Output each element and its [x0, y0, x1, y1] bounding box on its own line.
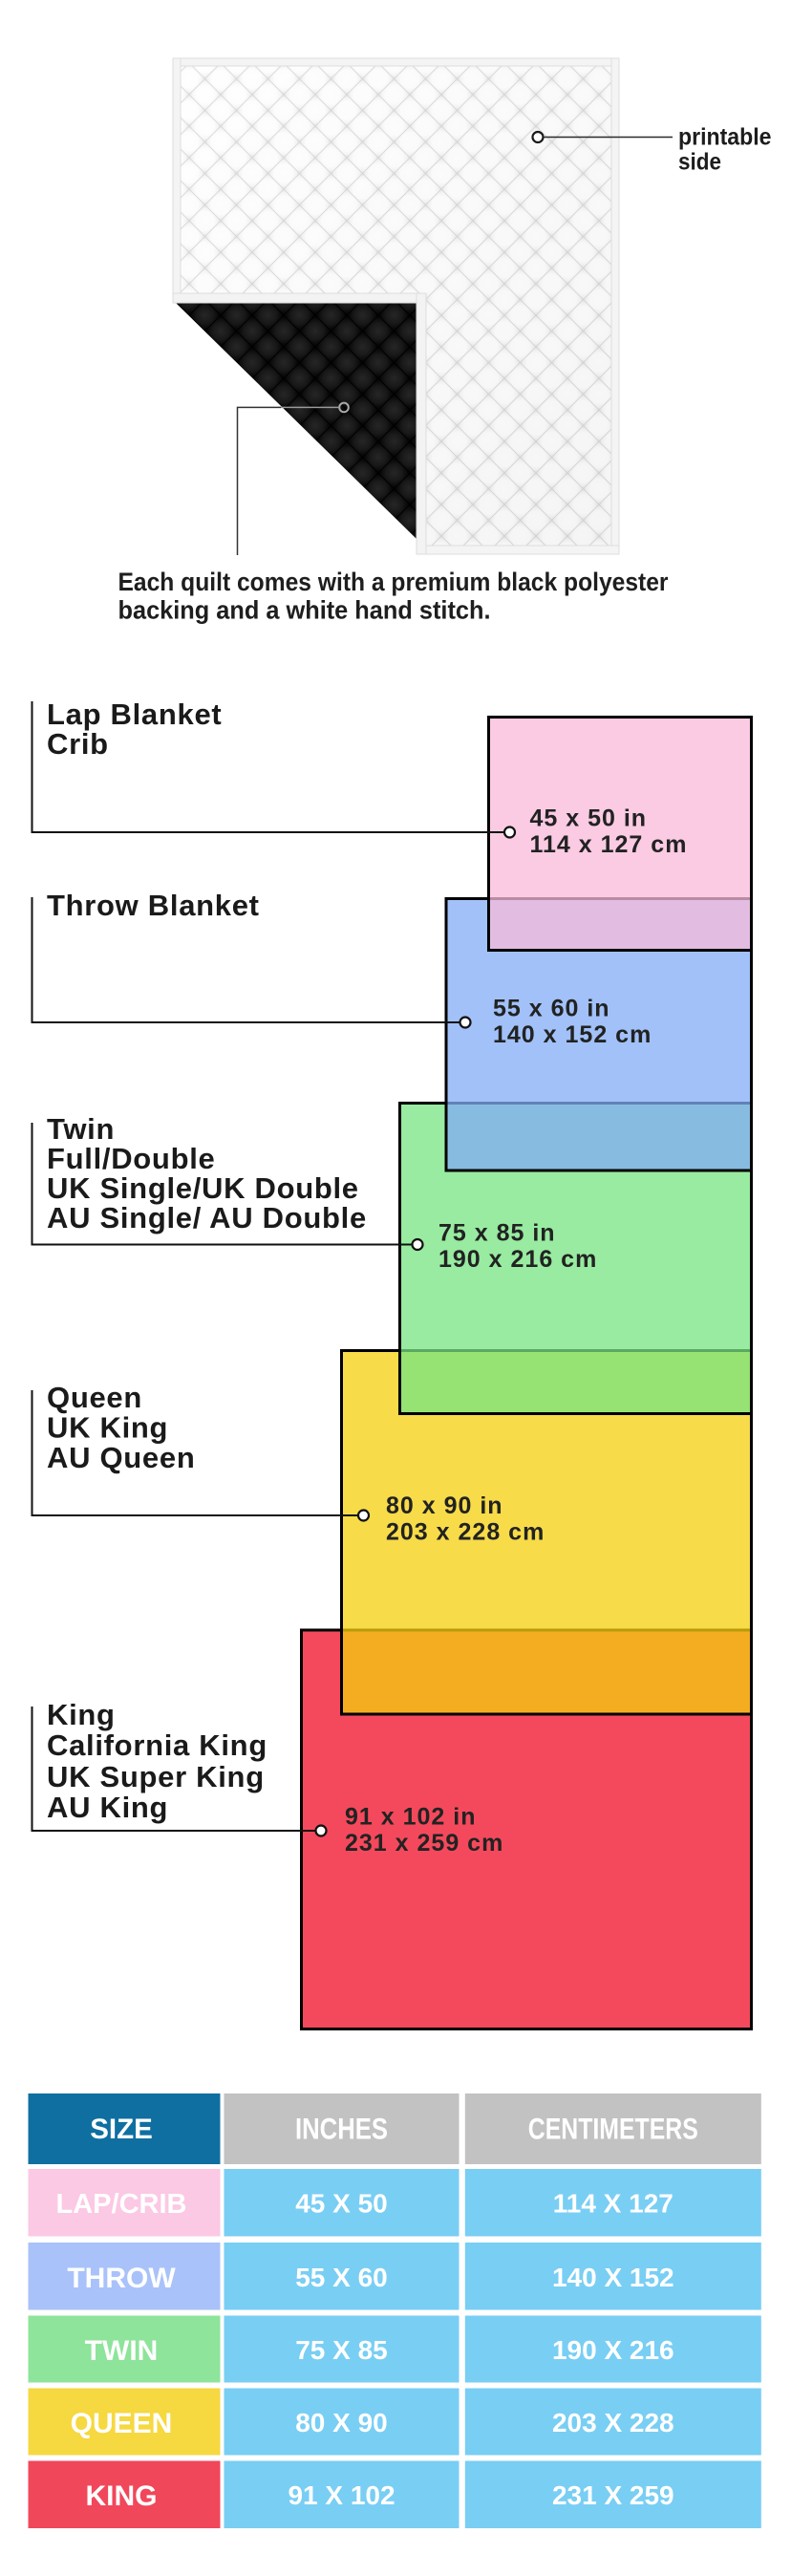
svg-text:114 x 127 cm: 114 x 127 cm: [530, 831, 688, 858]
svg-text:SIZE: SIZE: [90, 2114, 153, 2145]
svg-text:45 x 50 in: 45 x 50 in: [530, 805, 648, 832]
svg-text:backing and a white hand stitc: backing and a white hand stitch.: [118, 596, 491, 625]
svg-text:190 X 216: 190 X 216: [552, 2335, 674, 2365]
svg-text:Queen: Queen: [47, 1381, 142, 1414]
svg-text:75 x 85 in: 75 x 85 in: [438, 1220, 556, 1247]
svg-text:45 X 50: 45 X 50: [295, 2189, 388, 2219]
svg-text:55 x 60 in: 55 x 60 in: [493, 996, 610, 1022]
svg-text:80 x 90 in: 80 x 90 in: [386, 1492, 503, 1519]
svg-text:80 X 90: 80 X 90: [295, 2408, 388, 2437]
svg-text:UK Single/UK Double: UK Single/UK Double: [47, 1171, 359, 1205]
svg-text:140 X 152: 140 X 152: [552, 2263, 674, 2292]
svg-text:Throw Blanket: Throw Blanket: [47, 889, 260, 922]
svg-text:INCHES: INCHES: [295, 2112, 388, 2146]
svg-text:Full/Double: Full/Double: [47, 1142, 215, 1175]
svg-text:231 X 259: 231 X 259: [552, 2480, 674, 2510]
svg-text:55 X 60: 55 X 60: [295, 2263, 388, 2292]
svg-text:140 x 152 cm: 140 x 152 cm: [493, 1021, 652, 1048]
svg-text:203 X 228: 203 X 228: [552, 2408, 674, 2437]
svg-text:printable: printable: [678, 124, 772, 151]
svg-text:KING: KING: [86, 2480, 158, 2512]
svg-text:QUEEN: QUEEN: [71, 2408, 173, 2439]
svg-text:Crib: Crib: [47, 727, 109, 761]
svg-text:California King: California King: [47, 1728, 267, 1762]
svg-text:231 x 259 cm: 231 x 259 cm: [345, 1830, 503, 1857]
svg-text:THROW: THROW: [67, 2263, 176, 2294]
svg-text:LAP/CRIB: LAP/CRIB: [56, 2189, 187, 2220]
svg-text:91 x 102 in: 91 x 102 in: [345, 1804, 476, 1831]
svg-text:AU Queen: AU Queen: [47, 1441, 195, 1474]
svg-text:side: side: [678, 149, 721, 176]
svg-text:91 X 102: 91 X 102: [288, 2480, 395, 2510]
svg-text:190 x 216 cm: 190 x 216 cm: [438, 1246, 597, 1273]
svg-text:UK Super King: UK Super King: [47, 1760, 265, 1793]
svg-text:King: King: [47, 1698, 116, 1731]
svg-text:203 x 228 cm: 203 x 228 cm: [386, 1519, 545, 1546]
svg-text:UK King: UK King: [47, 1411, 168, 1445]
svg-text:Twin: Twin: [47, 1112, 115, 1146]
svg-text:AU King: AU King: [47, 1791, 168, 1824]
svg-text:CENTIMETERS: CENTIMETERS: [528, 2112, 698, 2146]
svg-text:AU Single/ AU Double: AU Single/ AU Double: [47, 1201, 367, 1234]
svg-text:Lap Blanket: Lap Blanket: [47, 698, 222, 731]
svg-text:75 X 85: 75 X 85: [295, 2335, 388, 2365]
svg-text:Each quilt comes with a premiu: Each quilt comes with a premium black po…: [118, 568, 669, 596]
svg-text:114 X 127: 114 X 127: [553, 2189, 673, 2219]
svg-text:TWIN: TWIN: [85, 2335, 159, 2367]
